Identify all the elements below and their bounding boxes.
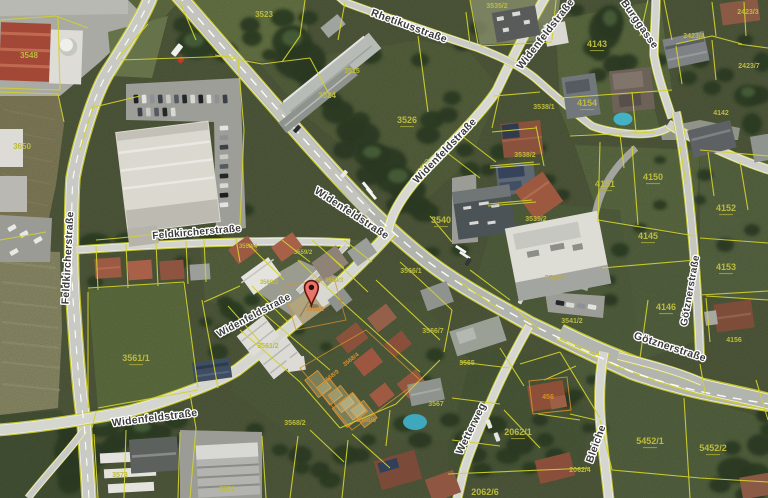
svg-text:4142: 4142: [713, 110, 729, 117]
svg-text:3541/1: 3541/1: [545, 273, 568, 282]
svg-text:3538/2: 3538/2: [514, 152, 536, 159]
svg-text:2062/1: 2062/1: [504, 427, 532, 437]
svg-text:3538/1: 3538/1: [533, 104, 555, 111]
svg-text:3523: 3523: [255, 10, 273, 19]
svg-text:3558/4: 3558/4: [239, 244, 258, 250]
svg-text:3566/7: 3566/7: [422, 328, 444, 335]
svg-text:3525: 3525: [344, 68, 360, 75]
svg-text:4153: 4153: [716, 262, 736, 272]
svg-text:3571: 3571: [219, 486, 235, 493]
svg-text:3565: 3565: [459, 360, 475, 367]
svg-text:4151: 4151: [595, 179, 615, 189]
svg-text:4154: 4154: [577, 98, 597, 108]
svg-text:3539/2: 3539/2: [525, 216, 547, 223]
svg-text:5452/2: 5452/2: [699, 443, 727, 453]
svg-text:2423/3: 2423/3: [737, 9, 759, 16]
svg-text:3559/2: 3559/2: [294, 250, 313, 256]
svg-text:3535/2: 3535/2: [486, 3, 508, 10]
svg-text:4150: 4150: [643, 172, 663, 182]
svg-text:3568/2: 3568/2: [284, 420, 306, 427]
svg-text:5452/1: 5452/1: [636, 436, 664, 446]
svg-text:3650: 3650: [13, 142, 31, 151]
svg-text:2423/7: 2423/7: [738, 63, 760, 70]
svg-text:3573: 3573: [112, 472, 128, 479]
svg-text:3566/1: 3566/1: [400, 268, 422, 275]
svg-text:3561/1: 3561/1: [122, 353, 150, 363]
svg-text:3524: 3524: [318, 91, 336, 100]
svg-text:3560/2: 3560/2: [260, 280, 279, 286]
svg-text:2062/6: 2062/6: [471, 487, 499, 497]
svg-text:4146: 4146: [656, 302, 676, 312]
svg-text:3548: 3548: [20, 51, 38, 60]
svg-text:2423/4: 2423/4: [683, 33, 705, 40]
svg-text:4152: 4152: [716, 203, 736, 213]
svg-text:3559/3: 3559/3: [325, 278, 344, 284]
svg-text:3541/2: 3541/2: [561, 318, 583, 325]
svg-text:4143: 4143: [587, 39, 607, 49]
svg-text:3526: 3526: [397, 115, 417, 125]
svg-text:3567: 3567: [428, 401, 444, 408]
svg-text:4145: 4145: [638, 231, 658, 241]
svg-text:2062/4: 2062/4: [569, 467, 591, 474]
svg-text:3540: 3540: [431, 215, 451, 225]
svg-text:456: 456: [542, 394, 554, 401]
svg-text:4156: 4156: [726, 337, 742, 344]
svg-text:3568/6: 3568/6: [356, 417, 376, 424]
svg-text:3561/2: 3561/2: [257, 343, 279, 350]
